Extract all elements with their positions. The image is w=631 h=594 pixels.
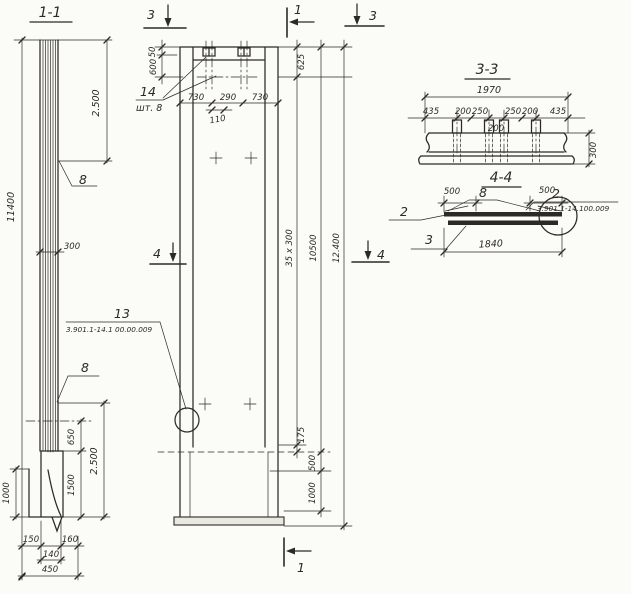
cut3r-arrowhead-icon	[354, 16, 361, 25]
dim-2500-bottom: 2.500	[89, 447, 100, 474]
pos8-label: 8	[479, 185, 487, 200]
s33-beam-bands	[421, 133, 572, 164]
centerline-crosses	[199, 152, 257, 410]
s11-dimension-lines	[10, 38, 112, 580]
pos2l-leader	[389, 215, 446, 220]
s33-break-lines	[419, 133, 575, 164]
cut4r-arrowhead-icon	[365, 251, 372, 260]
pos-2-left-callout: 2	[389, 204, 446, 220]
section-3-3-title: 3-3	[476, 62, 499, 78]
dim-250l: 250	[472, 107, 488, 117]
pos-8-top: 8	[79, 172, 87, 187]
dim-160: 160	[62, 535, 78, 545]
dim-11400: 11400	[6, 192, 17, 222]
pos2r-ref: 3.901.1-14.100.009	[537, 204, 610, 213]
dim-730b: 730	[252, 93, 268, 103]
dim-435l: 435	[423, 107, 439, 117]
dim-1970: 1970	[477, 85, 501, 96]
pile-laminations	[43, 40, 56, 452]
pos13-label: 13	[114, 306, 130, 321]
dim-300: 300	[64, 242, 80, 252]
dim-500-left: 500	[444, 187, 460, 197]
dim-1500: 1500	[67, 474, 77, 496]
cut-marker-4-right: 4	[352, 241, 389, 262]
dim-10500: 10500	[309, 234, 319, 261]
cut-marker-1-bottom: 1	[284, 538, 311, 575]
dim-250r: 250	[505, 107, 521, 117]
dim-600: 600	[149, 59, 159, 75]
pile-shoe-curve	[48, 470, 61, 516]
s33-bolt-embedded-legs	[454, 134, 540, 162]
weld-leader-top	[59, 161, 97, 186]
cut1b-label: 1	[297, 560, 305, 575]
dim-110: 110	[209, 114, 227, 127]
section-4-4-title: 4-4	[490, 170, 513, 186]
section-1-1-view: 1-1 11400 2.500 300 8 8 650 2.500 1500 1…	[2, 5, 112, 580]
cut4l-arrowhead-icon	[170, 253, 177, 262]
cut-marker-1-top: 1	[287, 2, 314, 37]
cut3l-label: 3	[147, 7, 155, 22]
elev-dimension-ticks	[159, 44, 347, 529]
dim-1840: 1840	[479, 238, 504, 250]
right-flange-rungs	[265, 47, 278, 447]
dim-1000-left: 1000	[2, 482, 12, 504]
pos-14-callout: 14 шт. 8	[136, 57, 216, 114]
dim-150: 150	[23, 535, 39, 545]
pile-tip	[52, 517, 62, 531]
cut-marker-3-right: 3	[345, 4, 384, 26]
pos3l-leader	[411, 226, 466, 249]
dim-200r: 200	[522, 107, 538, 117]
cut-marker-3-left: 3	[144, 5, 186, 28]
column-elevation-view: 3 3 1 1 4 4	[66, 2, 389, 575]
dim-300-s33: 300	[589, 142, 599, 158]
dim-140: 140	[43, 550, 59, 560]
left-flange-rungs	[181, 47, 194, 447]
cut1t-label: 1	[294, 2, 302, 17]
cut1b-arrowhead-icon	[286, 548, 295, 555]
cut4r-label: 4	[377, 247, 385, 262]
dim-200l: 200	[455, 107, 471, 117]
pos-8-bottom: 8	[81, 360, 89, 375]
top-plate-hatch	[194, 48, 264, 59]
s11-dimension-ticks	[13, 37, 110, 580]
dim-650: 650	[67, 429, 77, 445]
dim-625: 625	[297, 54, 307, 70]
dim-50: 50	[148, 47, 158, 58]
dim-200c: 200	[488, 124, 504, 134]
pos14-qty: шт. 8	[136, 103, 162, 114]
anchor-bolts	[203, 48, 250, 56]
section-4-4-view: 4-4 8 500 500 2 3 1840	[389, 170, 618, 257]
dim-290: 290	[220, 93, 236, 103]
cut3r-label: 3	[369, 8, 377, 23]
drawing-sheet: 1-1 11400 2.500 300 8 8 650 2.500 1500 1…	[0, 0, 631, 594]
base-plate	[174, 517, 284, 525]
cut4l-label: 4	[153, 246, 161, 261]
dim-500-embed: 500	[308, 455, 318, 471]
elev-dimension-lines	[155, 40, 352, 530]
section-3-3-view: 3-3 1970 435 200 250 250 200 435 200 300	[408, 62, 599, 167]
dim-12400: 12.400	[332, 233, 342, 263]
dim-435r: 435	[550, 107, 566, 117]
pos-3-left-callout: 3	[411, 226, 466, 249]
dim-1000-embed: 1000	[308, 482, 318, 504]
pos2l-label: 2	[400, 204, 408, 219]
pos-13-callout: 13 3.901.1-14.1 00.00.009	[66, 306, 186, 409]
detail-circle-13	[175, 408, 199, 432]
column-lower-inner-lines	[190, 452, 268, 517]
dim-450: 450	[42, 565, 58, 575]
pos2r-label: 2	[552, 186, 560, 201]
pos14-label: 14	[140, 84, 156, 99]
pos3l-label: 3	[425, 232, 433, 247]
dim-175: 175	[297, 427, 307, 443]
dim-2500-top: 2.500	[91, 89, 102, 116]
drawing-canvas: 1-1 11400 2.500 300 8 8 650 2.500 1500 1…	[0, 0, 631, 594]
column-outline	[180, 47, 278, 517]
dim-730a: 730	[188, 93, 204, 103]
s44-1840-dim-line	[444, 228, 562, 257]
dim-35x300: 35 x 300	[285, 229, 295, 266]
section-1-1-title: 1-1	[39, 5, 62, 21]
cut1t-arrowhead-icon	[289, 19, 298, 26]
weld-leader-bottom	[57, 376, 99, 402]
pos13-ref: 3.901.1-14.1 00.00.009	[66, 325, 153, 334]
cut3l-arrowhead-icon	[165, 18, 172, 27]
